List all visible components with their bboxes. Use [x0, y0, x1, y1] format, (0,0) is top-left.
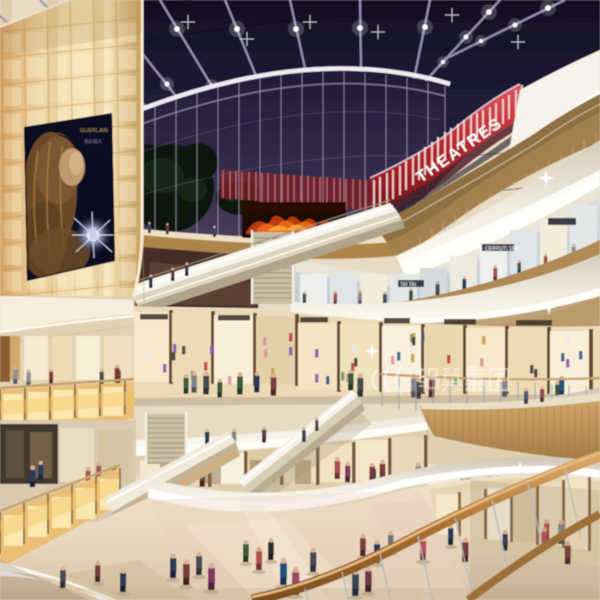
svg-text:TAI TAI: TAI TAI — [400, 282, 416, 288]
svg-text:光彩照人: 光彩照人 — [84, 138, 102, 145]
svg-text:GUERLAIN: GUERLAIN — [80, 128, 108, 134]
svg-text:CERRUTI 1881: CERRUTI 1881 — [485, 246, 520, 252]
